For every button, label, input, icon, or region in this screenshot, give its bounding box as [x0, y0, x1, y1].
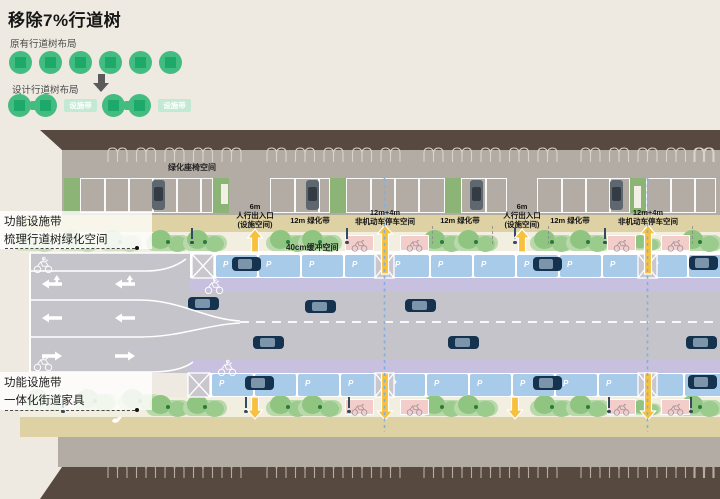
dimension-tick — [492, 226, 493, 244]
parking-p-icon: P — [653, 260, 662, 269]
parked-car-icon — [306, 180, 319, 210]
parking-p-icon: P — [223, 260, 232, 269]
parking-stall-line — [418, 178, 420, 213]
callout-street-furniture: 功能设施带 一体化街道家具 — [0, 372, 152, 410]
dimension-label: 12m 绿化带 — [290, 216, 330, 225]
tree-icon — [183, 395, 227, 419]
street-redesign-diagram: 移除7%行道树 原有行道树布局 设计行道树布局 设施带 设施带 PPPPPPPP… — [0, 0, 720, 499]
bike-parking-zone — [661, 399, 690, 415]
tree-icon — [298, 395, 342, 419]
callout-line: 一体化街道家具 — [4, 392, 148, 410]
tree-icon — [566, 395, 610, 419]
parked-car-icon — [610, 180, 623, 210]
parking-p-icon: P — [610, 260, 619, 269]
setback-space-label: 绿化座椅空间 — [168, 162, 216, 173]
parking-p-icon: P — [567, 260, 576, 269]
parking-p-icon: P — [266, 260, 275, 269]
planting-strip — [64, 178, 80, 213]
bike-parking-zone — [345, 235, 374, 251]
parked-car-icon — [533, 257, 562, 271]
parking-p-icon: P — [524, 260, 533, 269]
parking-stall-line — [294, 178, 296, 213]
dimension-label: 12m+4m非机动车停车空间 — [618, 208, 678, 226]
plan-canvas: PPPPPPPPPPPPPPPPPPPPPPPP — [0, 0, 720, 499]
parked-car-icon — [533, 376, 562, 390]
buffer-label: 40cm缓冲空间 — [286, 242, 338, 253]
parking-stall-line — [561, 178, 563, 213]
dimension-label: 6m人行出入口(设施空间) — [236, 202, 274, 229]
parked-car-icon — [689, 256, 718, 270]
callout-line: 功能设施带 — [4, 213, 148, 231]
parking-p-icon: P — [434, 379, 443, 388]
parking-p-icon: P — [477, 379, 486, 388]
parking-p-icon: P — [481, 260, 490, 269]
bike-lane-bottom — [190, 360, 720, 373]
parked-car-icon — [688, 375, 717, 389]
lamp-post-icon — [604, 228, 606, 239]
car-icon — [448, 336, 479, 349]
parking-p-icon: P — [391, 379, 400, 388]
lamp-post-icon — [191, 228, 193, 239]
parking-stall-line — [200, 178, 202, 213]
planting-strip — [445, 178, 461, 213]
callout-green-space: 功能设施带 梳理行道树绿化空间 — [0, 211, 152, 249]
parking-stall-line — [176, 178, 178, 213]
parking-p-icon: P — [219, 379, 228, 388]
building-bottom — [0, 467, 720, 499]
callout-leader-line — [5, 248, 135, 249]
building-top — [0, 130, 720, 150]
parking-p-icon: P — [348, 379, 357, 388]
bike-parking-zone — [400, 235, 429, 251]
parking-stall-line — [694, 178, 696, 213]
parking-p-icon: P — [309, 260, 318, 269]
parking-stall-line — [485, 178, 487, 213]
car-icon — [253, 336, 284, 349]
parking-stall — [270, 178, 330, 213]
parked-car-icon — [152, 180, 165, 210]
car-icon — [188, 297, 219, 310]
dimension-tick — [548, 226, 549, 244]
parking-stall — [461, 178, 507, 213]
car-icon — [405, 299, 436, 312]
parking-p-icon: P — [305, 379, 314, 388]
dimension-label: 6m人行出入口(设施空间) — [503, 202, 541, 229]
lamp-post-icon — [690, 397, 692, 408]
parking-p-icon: P — [606, 379, 615, 388]
dimension-label: 12m 绿化带 — [550, 216, 590, 225]
parked-car-icon — [245, 376, 274, 390]
dimension-tick — [692, 226, 693, 244]
bike-parking-zone — [661, 235, 690, 251]
parking-stall-line — [104, 178, 106, 213]
parking-p-icon: P — [352, 260, 361, 269]
parking-p-icon: P — [520, 379, 529, 388]
planting-strip-gap — [634, 186, 641, 208]
lamp-post-icon — [608, 397, 610, 408]
callout-line: 功能设施带 — [4, 374, 148, 392]
planting-strip-gap — [221, 184, 228, 204]
tree-icon — [454, 395, 498, 419]
parking-p-icon: P — [395, 260, 404, 269]
lamp-post-icon — [346, 228, 348, 239]
callout-line: 梳理行道树绿化空间 — [4, 231, 148, 249]
dimension-label: 12m+4m非机动车停车空间 — [355, 208, 415, 226]
lamp-post-icon — [514, 228, 516, 239]
parking-p-icon: P — [438, 260, 447, 269]
callout-leader-line — [5, 410, 135, 411]
bike-parking-zone — [607, 235, 636, 251]
car-icon — [305, 300, 336, 313]
parking-stall-line — [128, 178, 130, 213]
setback-bottom — [58, 437, 720, 467]
parked-car-icon — [232, 257, 261, 271]
bike-parking-zone — [400, 399, 429, 415]
bike-lane-top — [190, 278, 720, 291]
parking-p-icon: P — [563, 379, 572, 388]
dimension-tick — [432, 226, 433, 244]
parking-p-icon: P — [649, 379, 658, 388]
dimension-label: 12m 绿化带 — [440, 216, 480, 225]
parking-stall — [80, 178, 213, 213]
lamp-post-icon — [348, 397, 350, 408]
parking-stall-line — [585, 178, 587, 213]
sidewalk-bottom — [20, 417, 720, 437]
lamp-post-icon — [245, 397, 247, 408]
lamp-post-icon — [516, 397, 518, 408]
parked-car-icon — [470, 180, 483, 210]
planting-strip — [330, 178, 346, 213]
bike-parking-zone — [607, 399, 636, 415]
car-icon — [686, 336, 717, 349]
